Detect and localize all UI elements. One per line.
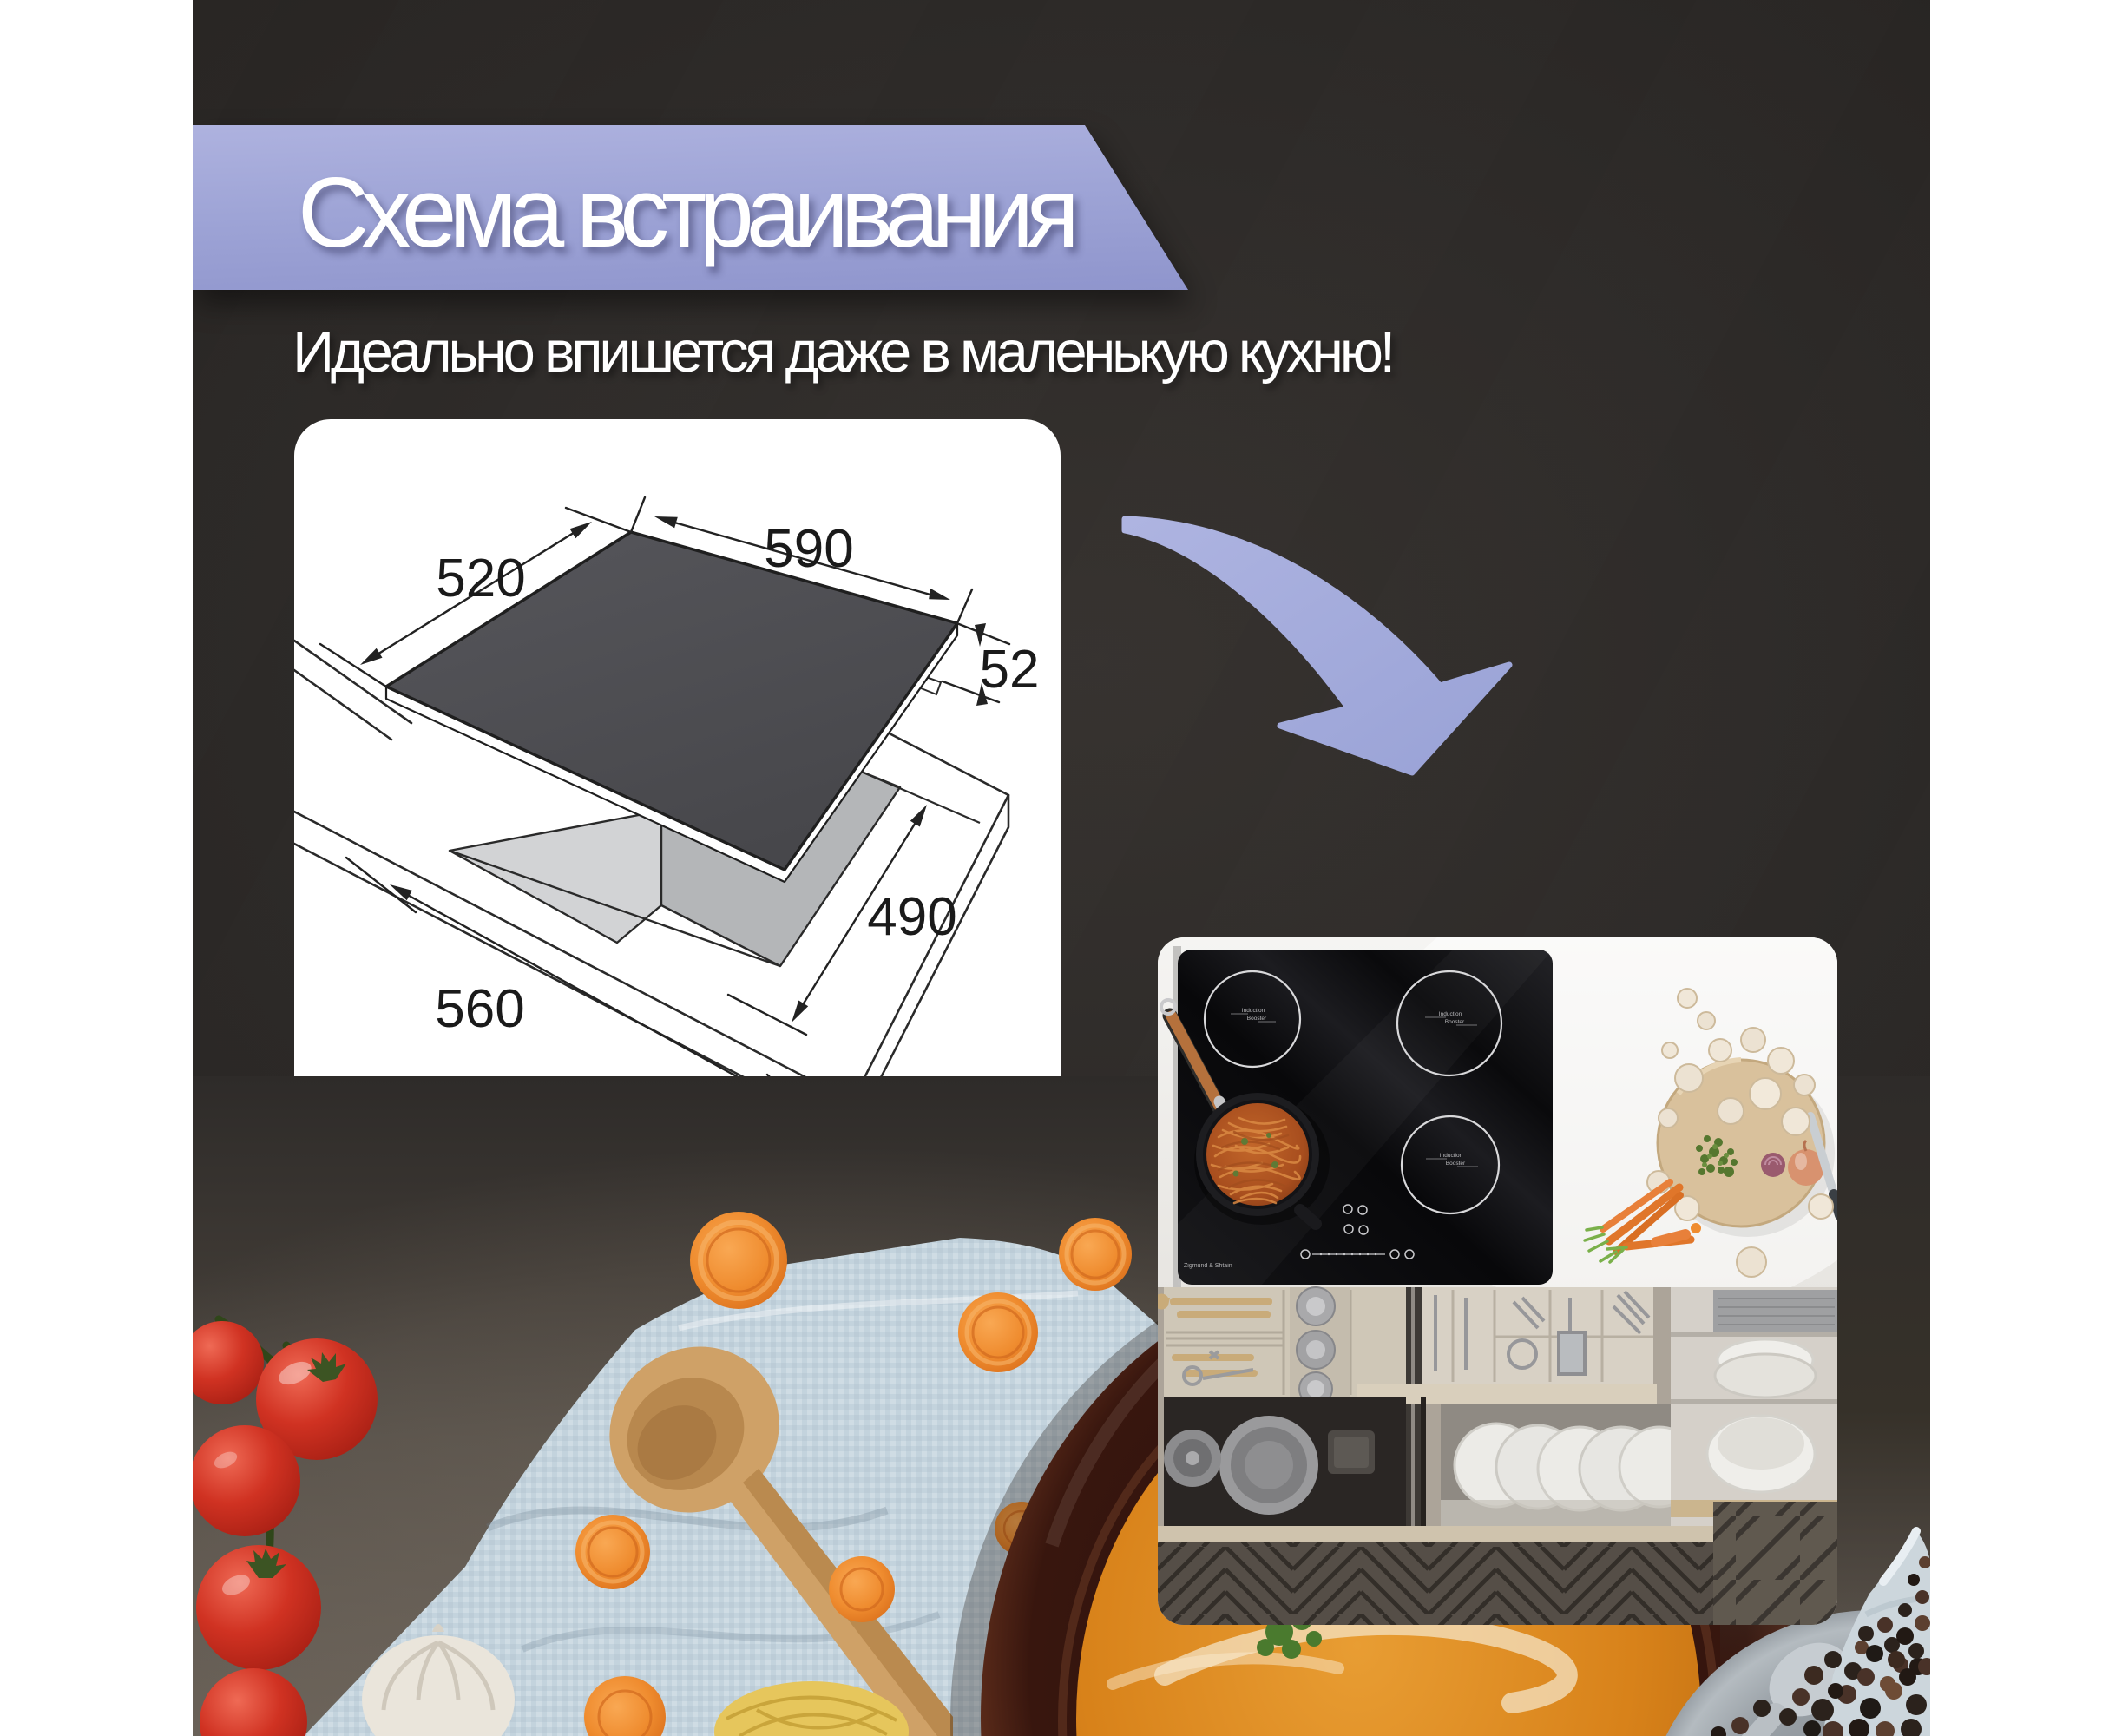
svg-text:Booster: Booster xyxy=(1446,1161,1466,1167)
svg-text:520: 520 xyxy=(436,549,525,608)
svg-text:Booster: Booster xyxy=(1445,1019,1465,1025)
svg-text:Induction: Induction xyxy=(1440,1153,1463,1159)
svg-text:Zigmund & Shtain: Zigmund & Shtain xyxy=(1184,1263,1232,1269)
svg-text:52: 52 xyxy=(980,640,1040,700)
svg-text:490: 490 xyxy=(867,887,956,947)
svg-text:Booster: Booster xyxy=(1247,1016,1267,1022)
svg-text:Induction: Induction xyxy=(1439,1011,1462,1017)
svg-text:Induction: Induction xyxy=(1242,1008,1265,1014)
svg-text:590: 590 xyxy=(764,519,853,579)
svg-text:560: 560 xyxy=(435,979,524,1039)
